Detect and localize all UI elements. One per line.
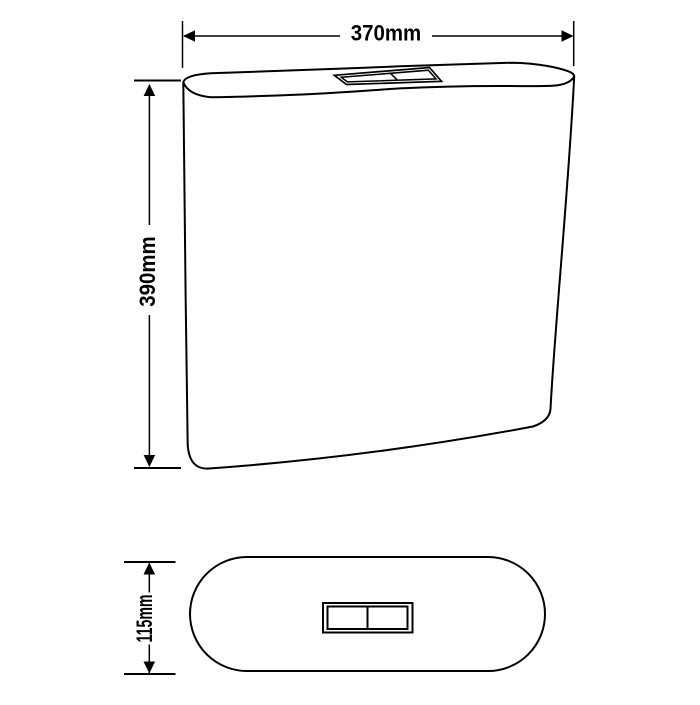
svg-text:115mm: 115mm xyxy=(132,595,157,643)
svg-text:390mm: 390mm xyxy=(135,236,160,307)
svg-text:370mm: 370mm xyxy=(351,21,422,46)
